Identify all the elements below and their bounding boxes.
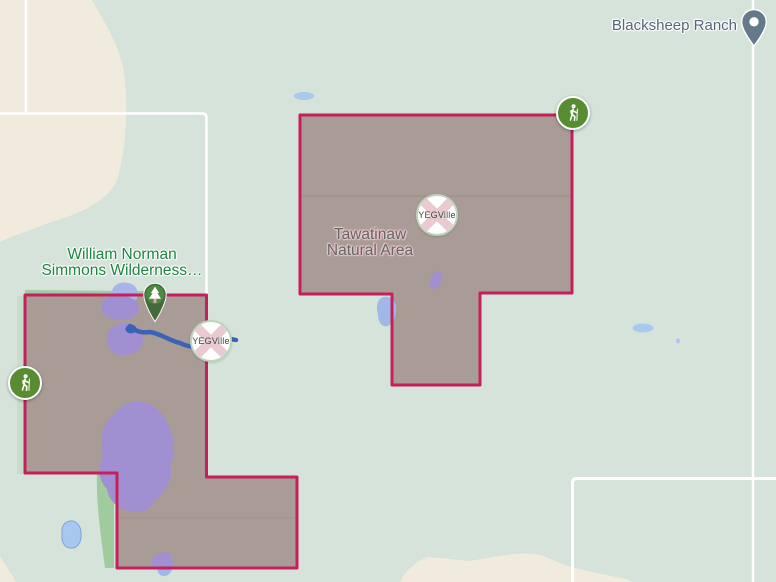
tawatinaw-label[interactable]: Tawatinaw Natural Area [280, 227, 460, 259]
tree-pin-icon [141, 281, 169, 323]
tawatinaw-label-line1: Tawatinaw [280, 227, 460, 243]
pond-north [294, 92, 314, 100]
lake-southwest [62, 521, 81, 548]
blacksheep-ranch-pin[interactable] [737, 9, 771, 47]
pond-east [633, 324, 654, 333]
wilderness-label-line2: Simmons Wilderness… [10, 263, 234, 279]
trailhead-marker-tawatinaw[interactable] [556, 96, 590, 130]
yegville-watermark-wilderness[interactable]: YEGVille [190, 320, 232, 362]
wetland-patch-upper [101, 296, 139, 321]
hiker-icon [562, 102, 584, 124]
hiker-icon [14, 372, 36, 394]
map-terrain-layer [0, 0, 776, 582]
blacksheep-ranch-label[interactable]: Blacksheep Ranch [589, 17, 737, 34]
map-canvas[interactable]: YEGVille YEGVille [0, 0, 776, 582]
wilderness-label[interactable]: William Norman Simmons Wilderness… [10, 247, 234, 279]
pond-east-tiny [676, 339, 680, 344]
trailhead-marker-wilderness[interactable] [8, 366, 42, 400]
wilderness-label-line1: William Norman [10, 247, 234, 263]
yegville-watermark-label: YEGVille [192, 322, 230, 360]
place-pin-icon [737, 9, 771, 47]
tawatinaw-label-line2: Natural Area [280, 243, 460, 259]
park-pin[interactable] [141, 281, 169, 323]
